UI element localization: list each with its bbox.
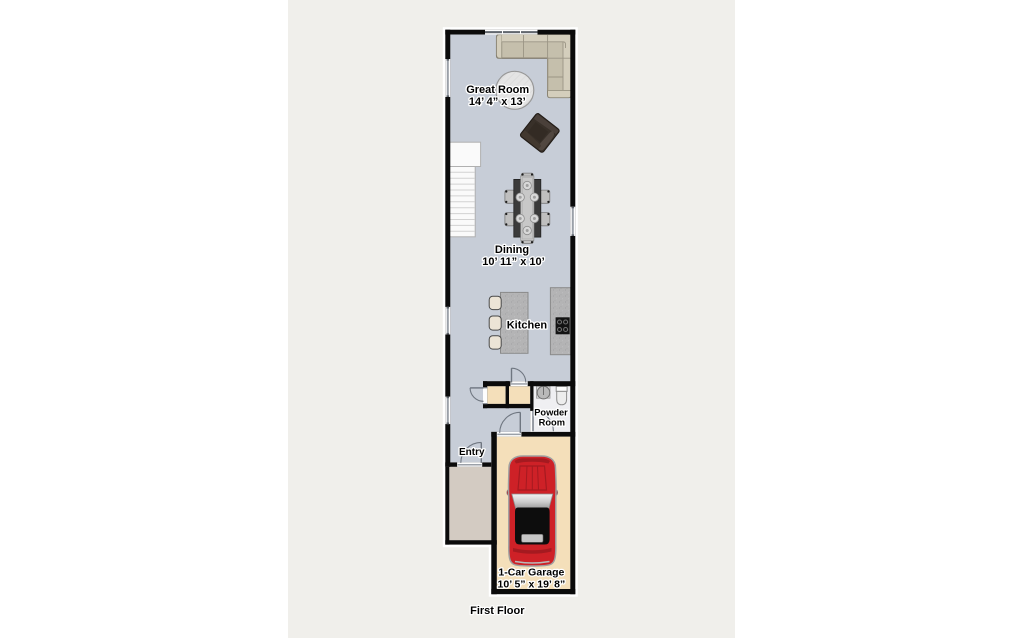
- svg-text:First Floor: First Floor: [470, 605, 525, 617]
- svg-text:Dining: Dining: [495, 244, 529, 256]
- svg-text:10’ 11” x 10’: 10’ 11” x 10’: [482, 256, 544, 268]
- svg-text:Powder: Powder: [534, 407, 568, 417]
- svg-text:14’ 4” x 13’: 14’ 4” x 13’: [469, 96, 526, 108]
- svg-text:Room: Room: [539, 418, 565, 428]
- svg-text:Entry: Entry: [459, 447, 485, 458]
- svg-text:Kitchen: Kitchen: [507, 320, 548, 332]
- svg-text:1-Car Garage: 1-Car Garage: [498, 567, 564, 579]
- svg-text:10’ 5” x 19’ 8”: 10’ 5” x 19’ 8”: [498, 579, 566, 591]
- svg-text:Great Room: Great Room: [466, 84, 529, 96]
